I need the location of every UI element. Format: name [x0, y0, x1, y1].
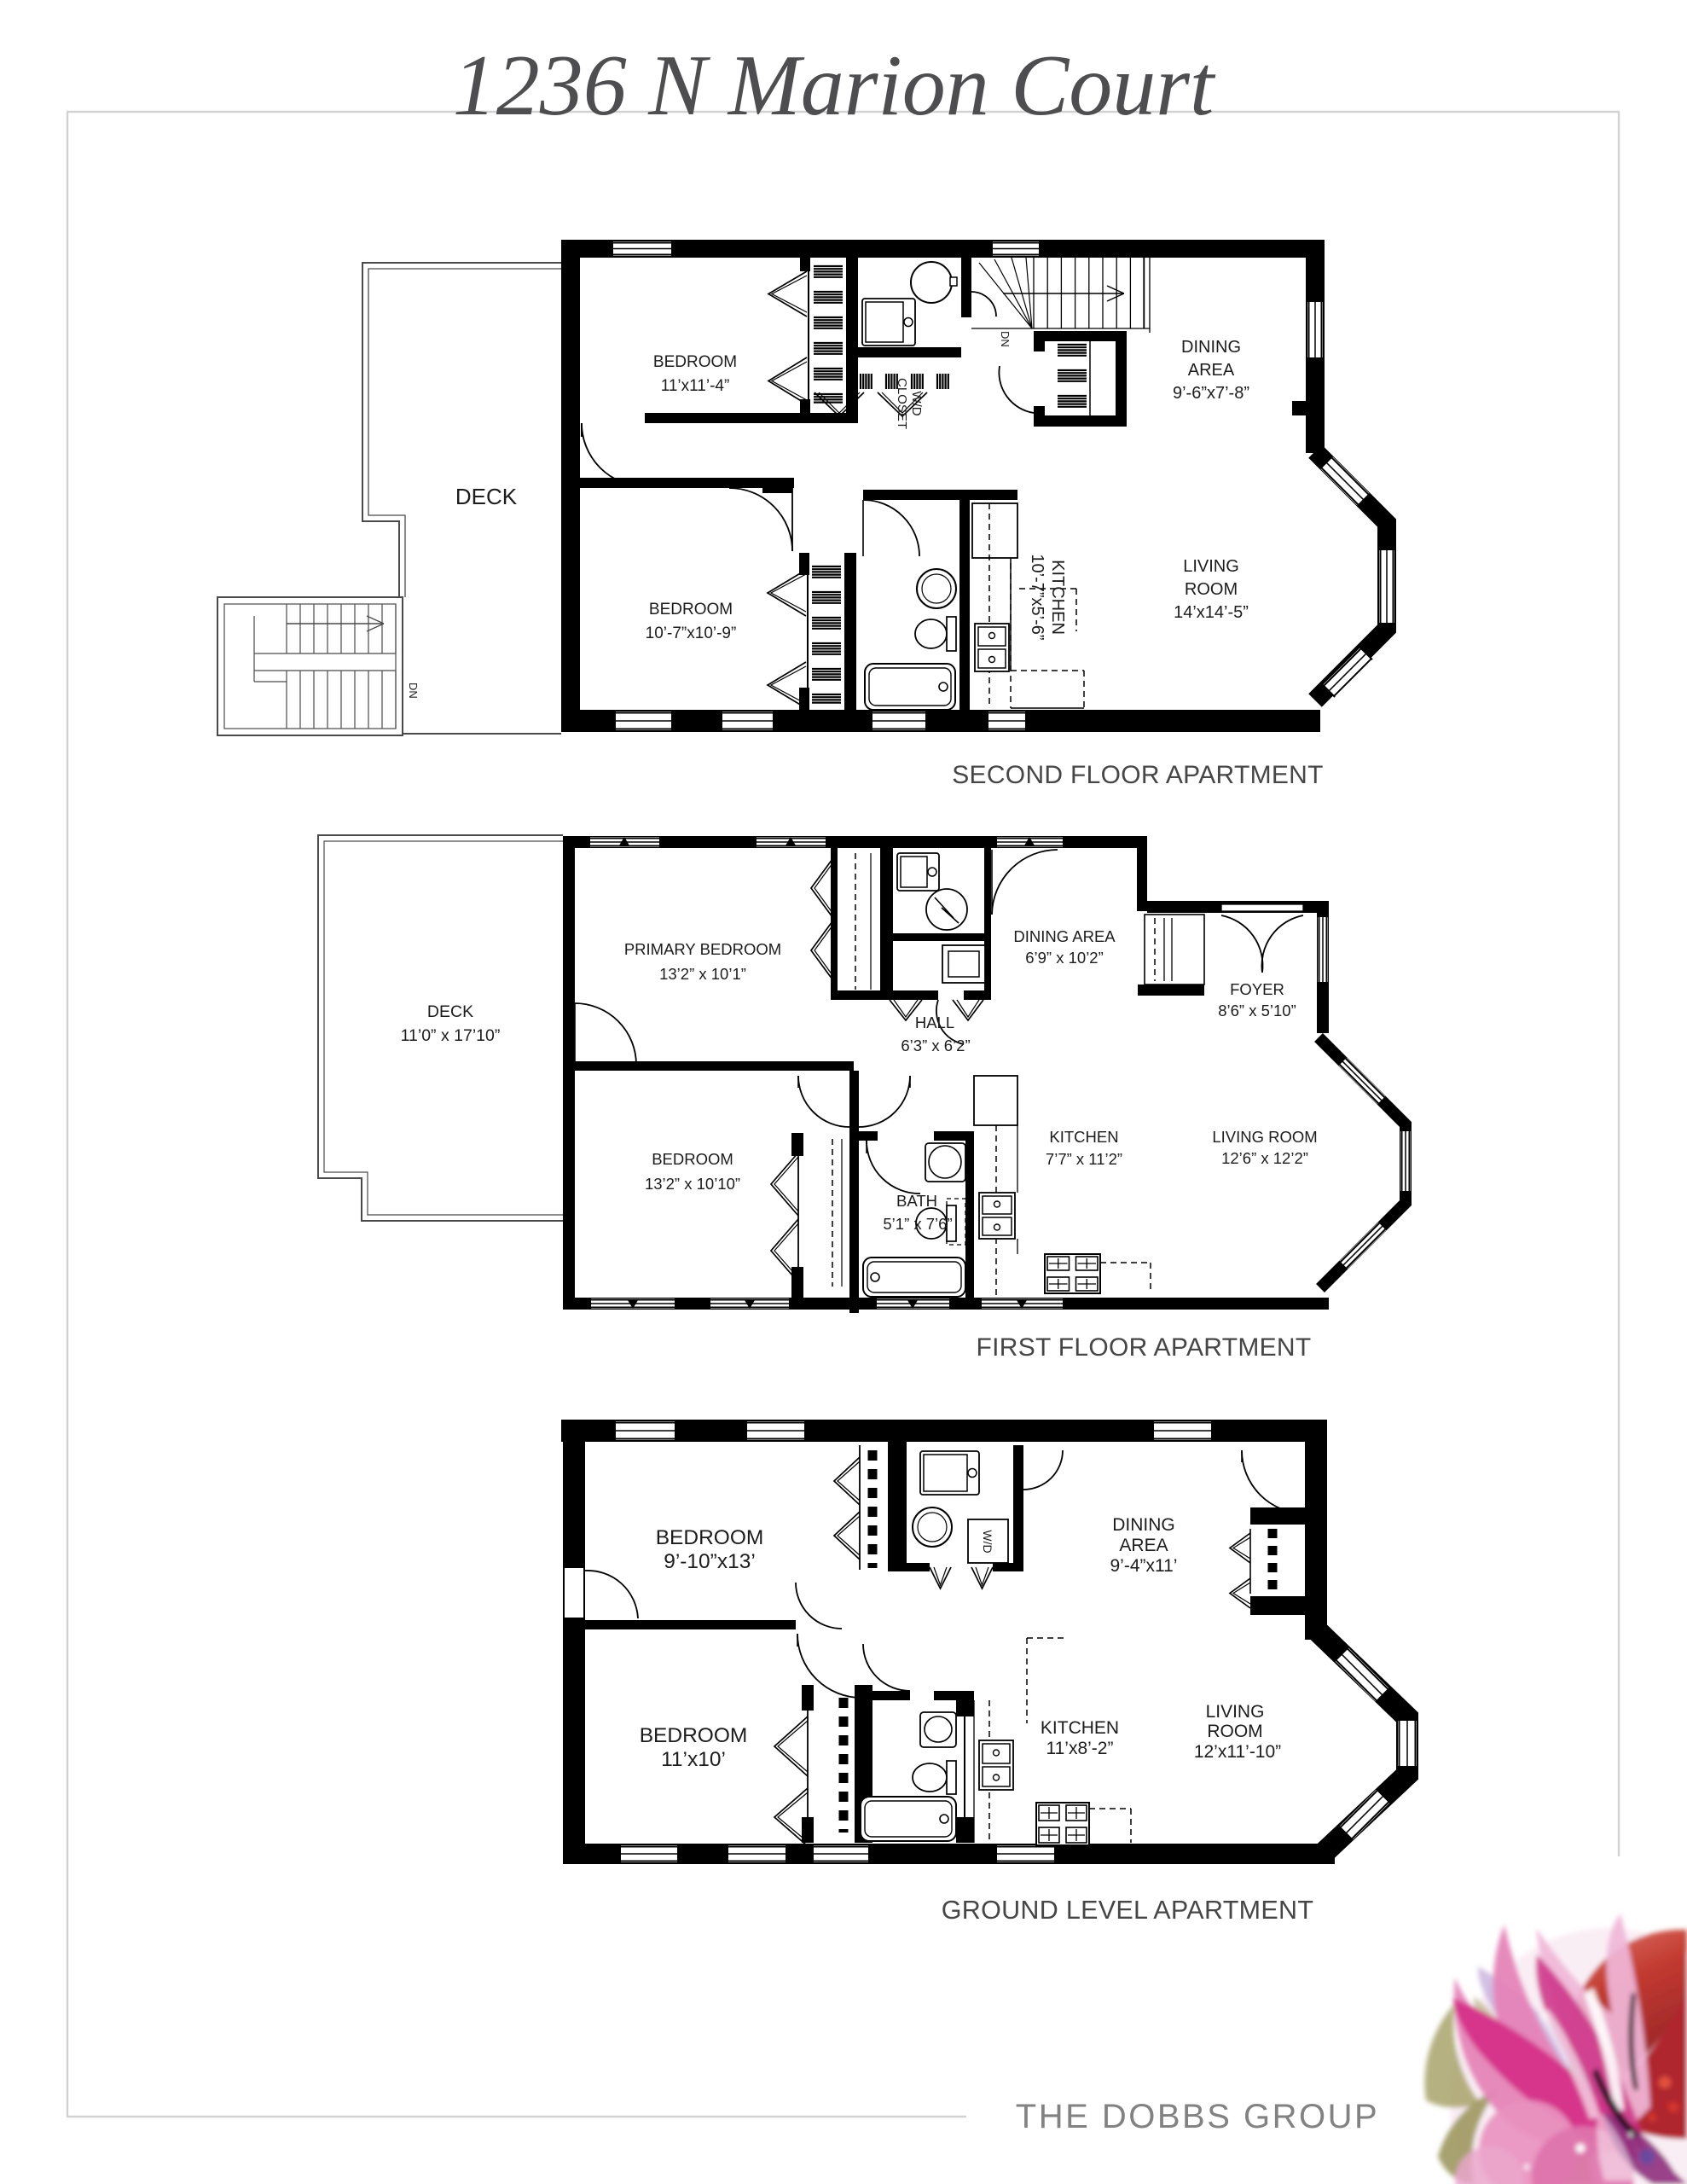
svg-text:6’9” x 10’2”: 6’9” x 10’2” [1025, 949, 1104, 967]
svg-text:13’2” x 10’1”: 13’2” x 10’1” [659, 965, 746, 983]
svg-text:11’x8’-2”: 11’x8’-2” [1046, 1739, 1114, 1758]
svg-text:THE DOBBS GROUP: THE DOBBS GROUP [1016, 2098, 1379, 2135]
svg-text:12’x11’-10”: 12’x11’-10” [1194, 1742, 1281, 1762]
svg-text:PRIMARY BEDROOM: PRIMARY BEDROOM [624, 940, 781, 958]
svg-text:LIVING ROOM: LIVING ROOM [1212, 1128, 1317, 1146]
svg-text:1236 N Marion Court: 1236 N Marion Court [453, 38, 1216, 134]
svg-text:BATH: BATH [896, 1192, 937, 1210]
svg-text:LIVING: LIVING [1206, 1702, 1265, 1722]
svg-text:11’x10’: 11’x10’ [661, 1748, 726, 1771]
svg-text:13’2” x 10’10”: 13’2” x 10’10” [645, 1175, 740, 1193]
svg-text:CLOSET: CLOSET [895, 378, 909, 429]
svg-text:DINING: DINING [1181, 338, 1241, 357]
svg-text:DECK: DECK [427, 1002, 473, 1021]
svg-text:LIVING: LIVING [1183, 557, 1239, 576]
svg-text:W/D: W/D [981, 1530, 994, 1553]
svg-text:ROOM: ROOM [1185, 580, 1238, 599]
svg-text:BEDROOM: BEDROOM [649, 601, 733, 619]
svg-text:9’-10”x13’: 9’-10”x13’ [664, 1550, 756, 1573]
svg-text:FIRST FLOOR APARTMENT: FIRST FLOOR APARTMENT [976, 1333, 1311, 1362]
svg-text:KITCHEN: KITCHEN [1048, 560, 1067, 635]
svg-text:FOYER: FOYER [1230, 980, 1284, 998]
svg-text:KITCHEN: KITCHEN [1041, 1718, 1119, 1738]
svg-text:7’7” x 11’2”: 7’7” x 11’2” [1046, 1150, 1122, 1168]
svg-text:KITCHEN: KITCHEN [1049, 1128, 1118, 1146]
svg-text:BEDROOM: BEDROOM [653, 353, 737, 371]
svg-text:11’0” x 17’10”: 11’0” x 17’10” [401, 1026, 501, 1045]
svg-text:6’3” x 6’2”: 6’3” x 6’2” [901, 1037, 970, 1054]
svg-text:BEDROOM: BEDROOM [656, 1526, 764, 1549]
svg-text:9’-4”x11’: 9’-4”x11’ [1110, 1556, 1178, 1576]
svg-text:DINING: DINING [1112, 1515, 1175, 1535]
svg-text:ROOM: ROOM [1207, 1722, 1262, 1741]
svg-text:DN: DN [407, 682, 420, 699]
svg-text:10’-7”x10’-9”: 10’-7”x10’-9” [646, 624, 737, 642]
svg-text:11’x11’-4”: 11’x11’-4” [661, 377, 730, 395]
svg-text:BEDROOM: BEDROOM [640, 1724, 748, 1747]
svg-text:W/D: W/D [909, 391, 924, 415]
svg-text:DINING AREA: DINING AREA [1013, 927, 1116, 945]
svg-text:DECK: DECK [455, 484, 518, 509]
svg-text:BEDROOM: BEDROOM [652, 1150, 733, 1168]
svg-text:HALL: HALL [915, 1014, 954, 1031]
svg-text:5’1” x 7’6”: 5’1” x 7’6” [883, 1215, 952, 1233]
svg-text:10’-7”x5’-6”: 10’-7”x5’-6” [1028, 554, 1046, 640]
svg-text:SECOND FLOOR APARTMENT: SECOND FLOOR APARTMENT [952, 761, 1324, 789]
svg-text:14’x14’-5”: 14’x14’-5” [1174, 603, 1249, 622]
svg-text:AREA: AREA [1188, 361, 1235, 380]
svg-text:DN: DN [999, 331, 1012, 347]
svg-text:GROUND LEVEL APARTMENT: GROUND LEVEL APARTMENT [942, 1896, 1314, 1925]
svg-text:8’6” x 5’10”: 8’6” x 5’10” [1218, 1002, 1296, 1019]
svg-text:12’6” x 12’2”: 12’6” x 12’2” [1221, 1149, 1308, 1167]
svg-text:AREA: AREA [1119, 1536, 1168, 1555]
svg-text:9’-6”x7’-8”: 9’-6”x7’-8” [1173, 384, 1249, 403]
